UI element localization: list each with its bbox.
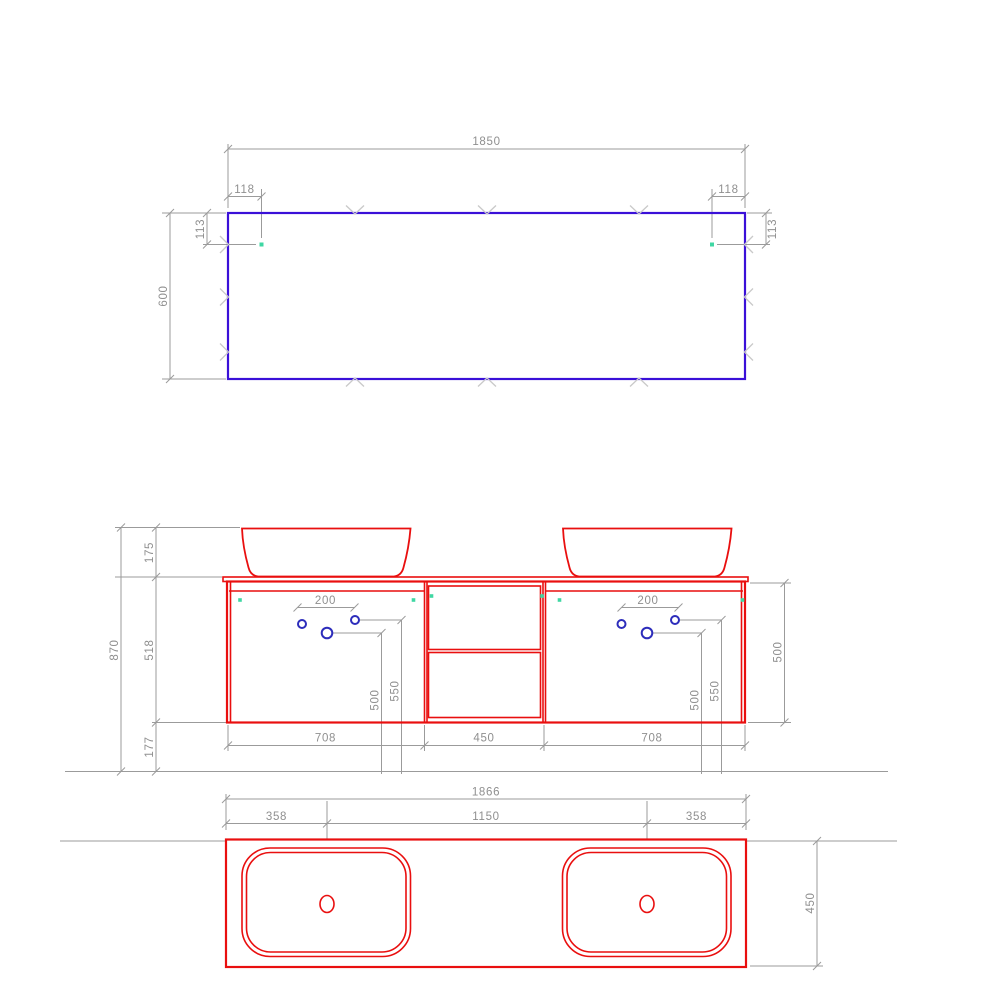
dim-center-hole-height-left: 500 (370, 689, 382, 710)
mirror-dimension-labels: 1850 118 118 113 113 600 (158, 136, 779, 307)
left-basin-front (242, 529, 411, 577)
dim-mirror-height: 600 (158, 285, 170, 306)
dim-faucet-spacing-right: 200 (637, 595, 658, 607)
vanity-technical-drawing: 1850 118 118 113 113 600 (0, 0, 1000, 1000)
dim-mirror-width: 1850 (472, 136, 500, 148)
mirror-top-view: 1850 118 118 113 113 600 (158, 136, 779, 387)
front-elevation-view: 870 175 518 177 200 200 500 550 500 550 … (65, 524, 888, 776)
dim-plan-basin-spacing: 1150 (472, 811, 500, 823)
countertop-plan-outline (226, 840, 746, 968)
dim-plan-depth: 450 (805, 892, 817, 913)
dim-plan-left-basin-offset: 358 (266, 811, 287, 823)
mirror-edge-marks (220, 206, 753, 387)
mirror-dimension-lines (166, 145, 770, 383)
dim-plan-right-basin-offset: 358 (686, 811, 707, 823)
mirror-mount-point-right (710, 243, 714, 247)
bottom-drawer-front (429, 653, 541, 718)
technical-drawing-canvas: 1850 118 118 113 113 600 (0, 0, 1000, 1000)
dim-outer-hole-height-left: 550 (390, 680, 402, 701)
mirror-mount-point-left (260, 243, 264, 247)
dim-mirror-hole-offset-right: 118 (718, 184, 738, 196)
dim-left-cabinet-width: 708 (315, 733, 336, 745)
dim-drawer-unit-width: 450 (473, 733, 494, 745)
dim-right-cabinet-width: 708 (641, 733, 662, 745)
dim-basin-height: 175 (144, 542, 156, 563)
dim-mirror-hole-drop-left: 113 (195, 219, 207, 239)
right-basin-front (563, 529, 732, 577)
dim-cabinet-height: 500 (773, 641, 785, 662)
mirror-outline (228, 213, 745, 379)
faucet-holes-right (618, 616, 680, 638)
dim-counter-cabinet-height: 518 (144, 639, 156, 660)
dim-mirror-hole-drop-right: 113 (767, 219, 779, 239)
dim-total-height: 870 (109, 639, 121, 660)
top-drawer-front (429, 586, 541, 650)
mirror-extension-lines (162, 144, 772, 379)
faucet-holes-left (298, 616, 359, 638)
dim-mirror-hole-offset-left: 118 (234, 184, 254, 196)
countertop-plan-view: 1866 358 1150 358 450 (60, 787, 897, 971)
dim-outer-hole-height-right: 550 (710, 680, 722, 701)
dim-faucet-spacing-left: 200 (315, 595, 336, 607)
dim-center-hole-height-right: 500 (690, 689, 702, 710)
dim-plan-total-width: 1866 (472, 787, 500, 799)
dim-floor-clearance: 177 (144, 736, 156, 757)
